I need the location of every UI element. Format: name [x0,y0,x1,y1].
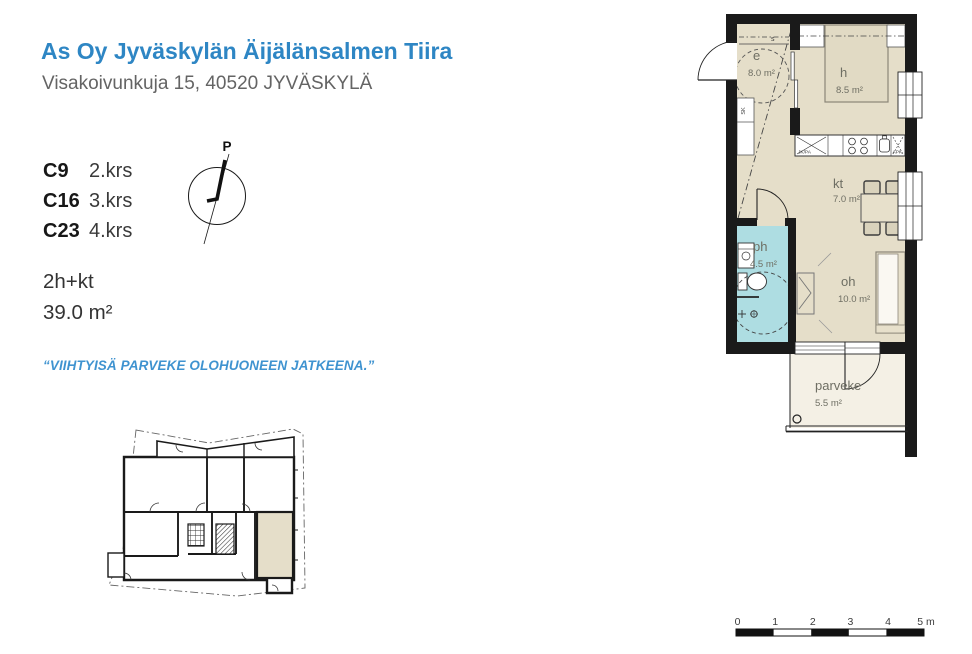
address: Visakoivunkuja 15, 40520 JYVÄSKYLÄ [42,73,372,95]
highlighted-unit [257,512,293,578]
main-floor-plan: s SK JK/PA [685,5,930,470]
apartment-list: C92.krs C163.krs C234.krs [43,156,132,246]
elevator-shaft [188,524,204,546]
fridge-freezer-label: JK/PA [798,150,812,156]
apartment-row: C234.krs [43,216,132,246]
apartment-code: C9 [43,156,89,186]
room-area-parveke: 5.5 m² [815,398,842,409]
apartment-area: 39.0 m² [43,297,113,328]
apartment-floor: 4.krs [89,220,132,242]
scale-tick-0: 0 [735,616,741,628]
room-area-e: 8.0 m² [748,68,775,79]
room-label-kt: kt [833,176,844,191]
scale-tick-2: 2 [810,616,816,628]
entry-door [698,41,737,80]
room-label-ph: ph [753,239,767,254]
scale-bar-segment [811,629,849,636]
keyplan-balcony-row [157,437,294,457]
apartment-floor: 3.krs [89,190,132,212]
balcony-window [795,342,845,354]
room-label-parveke: parveke [815,378,861,393]
apartment-code: C23 [43,216,89,246]
apartment-layout: 2h+kt [43,266,113,297]
dishwasher-label: APK [893,150,903,156]
compass-needle [207,160,225,201]
scale-tick-1: 1 [772,616,778,628]
room-area-kt: 7.0 m² [833,194,860,205]
room-label-h: h [840,65,847,80]
apartment-summary: 2h+kt 39.0 m² [43,266,113,328]
scale-tick-3: 3 [847,616,853,628]
room-area-oh: 10.0 m² [838,294,870,305]
kitchen-counter: JK/PA APK [795,135,905,156]
key-plan [95,418,325,603]
apartment-row: C163.krs [43,186,132,216]
scale-bar-segment [886,629,924,636]
building-annex [108,553,124,577]
floorplan-page: As Oy Jyväskylän Äijälänsalmen Tiira Vis… [0,0,972,654]
coat-rack-label: s [771,36,775,43]
sofa [876,252,905,333]
stairwell [216,524,234,554]
apartment-floor: 2.krs [89,160,132,182]
marketing-quote: “VIIHTYISÄ PARVEKE OLOHUONEEN JATKEENA.” [43,358,374,373]
window [898,72,922,118]
scale-end-label: 5 m [917,616,935,628]
cleaning-closet-label: SK [741,107,747,115]
scale-bar: 0 1 2 3 4 5 m [728,612,934,646]
compass-north-label: P [222,139,231,154]
window [898,172,922,240]
toilet [738,273,767,290]
page-title: As Oy Jyväskylän Äijälänsalmen Tiira [41,38,452,65]
room-label-e: e [753,48,760,63]
compass-icon: P [180,128,268,250]
cleaning-closet: SK [737,98,754,155]
scale-bar-segment [736,629,774,636]
room-area-ph: 4.5 m² [750,259,777,270]
chair [864,222,880,235]
room-label-oh: oh [841,274,855,289]
scale-tick-4: 4 [885,616,891,628]
room-area-h: 8.5 m² [836,85,863,96]
apartment-code: C16 [43,186,89,216]
chair [864,181,880,194]
apartment-row: C92.krs [43,156,132,186]
